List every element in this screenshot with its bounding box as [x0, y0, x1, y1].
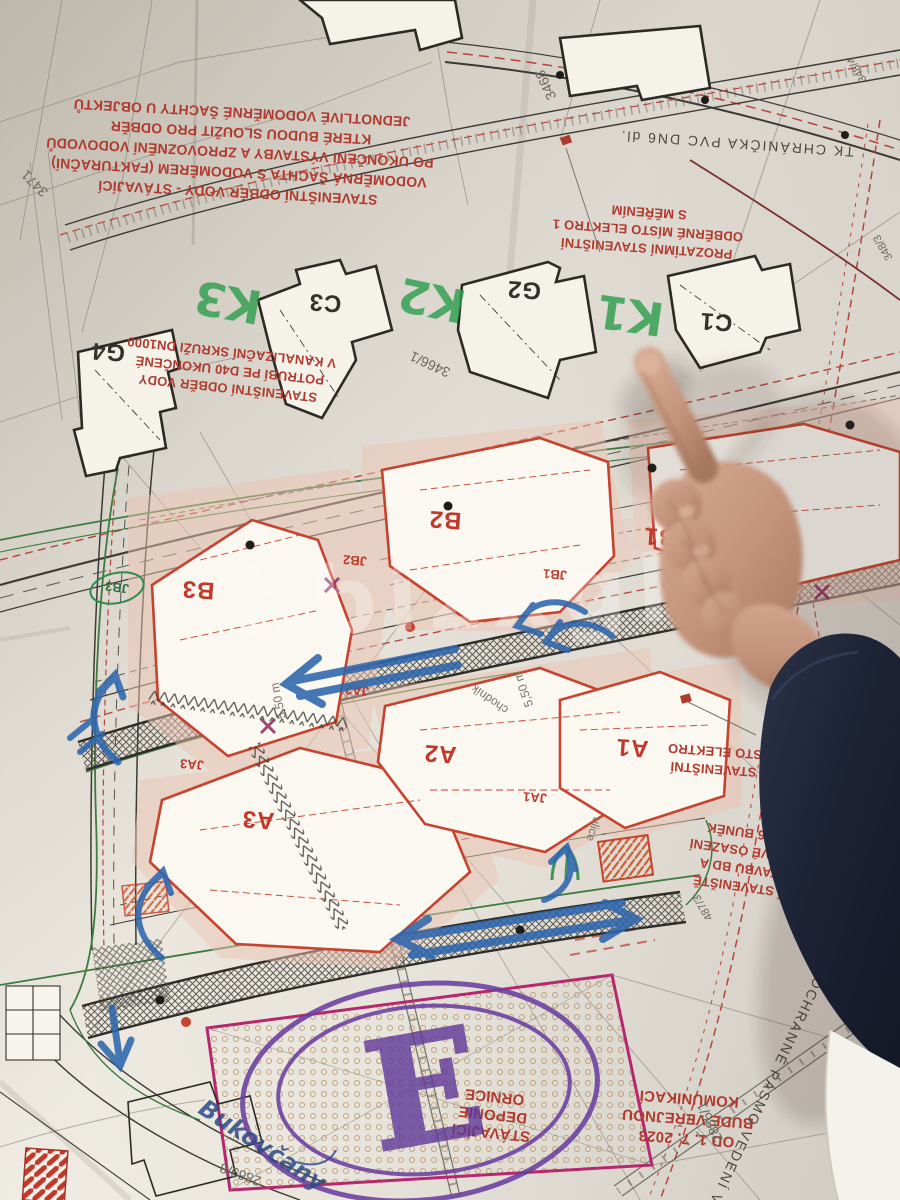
- plan-drawing: STAVENIŠTNÍ ODBĚR VODY - STÁVAJÍCÍ VODOM…: [0, 0, 900, 1200]
- label-building-a1: A1: [615, 733, 649, 762]
- handwriting-k3: K3: [190, 270, 266, 335]
- label-building-a2: A2: [423, 739, 457, 768]
- photo-watermark: hbizxgl: [234, 535, 681, 657]
- label-building-c3: C3: [308, 288, 342, 317]
- label-building-g4: G4: [90, 337, 126, 366]
- handwriting-k1: K1: [593, 284, 668, 347]
- label-building-c1: C1: [699, 307, 733, 336]
- label-ja1: JA1: [523, 789, 548, 806]
- label-ja3: JA3: [180, 756, 205, 773]
- note-water-shaft: STAVENIŠTNÍ ODBĚR VODY - STÁVAJÍCÍ VODOM…: [44, 95, 436, 212]
- label-building-b3: B3: [181, 575, 215, 604]
- label-jb3: JB3: [104, 579, 130, 597]
- label-building-b2: B2: [428, 505, 462, 534]
- label-building-a3: A3: [241, 805, 275, 834]
- site-plan-photo: STAVENIŠTNÍ ODBĚR VODY - STÁVAJÍCÍ VODOM…: [0, 0, 900, 1200]
- label-building-g2: G2: [506, 275, 542, 304]
